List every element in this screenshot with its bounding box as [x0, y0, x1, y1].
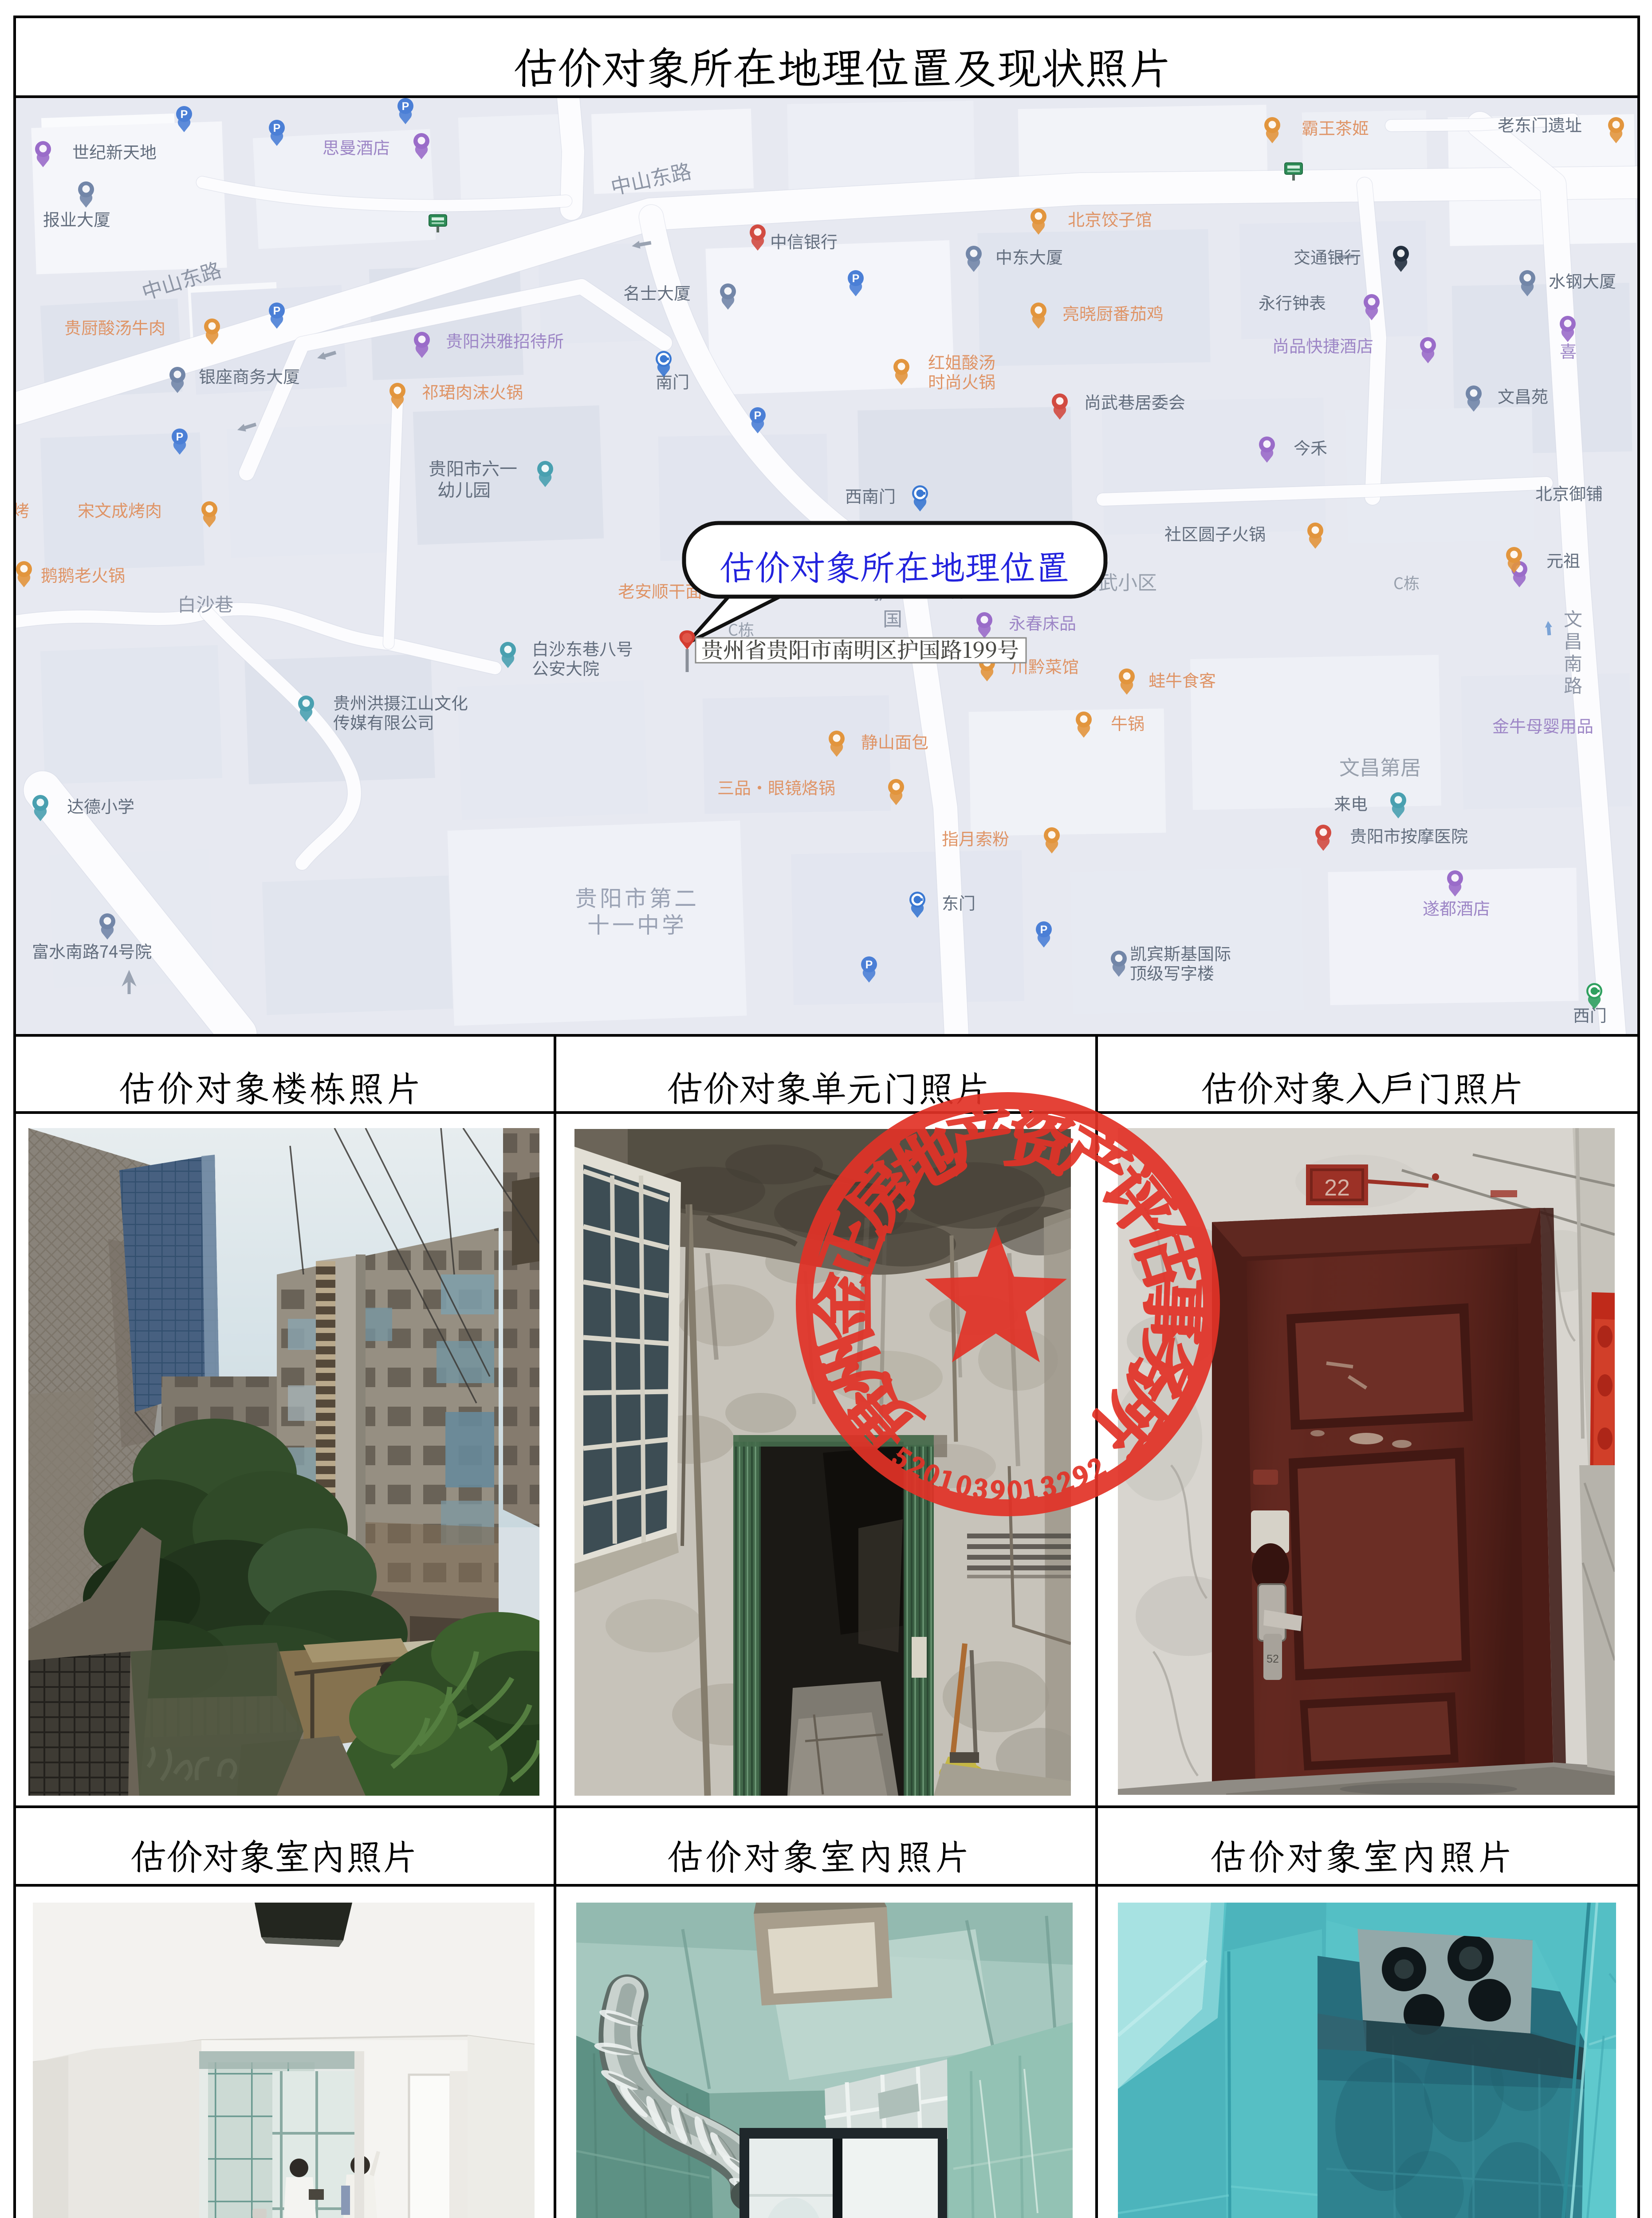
svg-text:P: P: [181, 108, 188, 121]
svg-text:52: 52: [1267, 1653, 1279, 1665]
svg-text:P: P: [273, 122, 281, 134]
svg-text:P: P: [402, 100, 409, 113]
svg-text:P: P: [273, 305, 281, 317]
svg-text:P: P: [754, 409, 762, 422]
svg-text:P: P: [1040, 924, 1048, 936]
svg-text:22: 22: [1324, 1175, 1350, 1201]
svg-text:P: P: [852, 272, 860, 285]
svg-text:P: P: [865, 959, 873, 971]
svg-text:P: P: [176, 431, 184, 443]
